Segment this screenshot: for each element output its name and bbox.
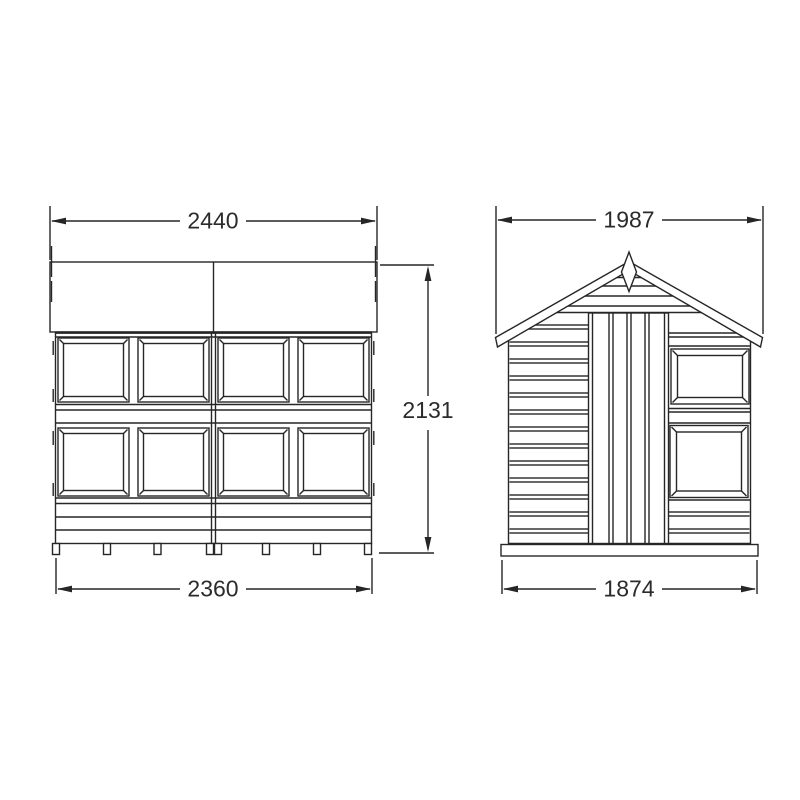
shed-technical-drawing: 2440 2131 2360 bbox=[0, 0, 800, 800]
front-wall bbox=[56, 332, 372, 544]
foot bbox=[207, 544, 214, 555]
front-roof-width-label: 2440 bbox=[187, 208, 238, 234]
side-base-width-dimension: 1874 bbox=[502, 560, 757, 602]
front-roof-width-dimension: 2440 bbox=[50, 206, 377, 260]
side-base-rail bbox=[501, 545, 758, 557]
front-height-dimension: 2131 bbox=[379, 265, 454, 553]
technical-drawing-canvas: 2440 2131 2360 bbox=[0, 0, 800, 800]
arrowhead bbox=[361, 218, 376, 225]
foot bbox=[215, 544, 222, 555]
foot bbox=[104, 544, 111, 555]
front-elevation-view: 2440 2131 2360 bbox=[50, 206, 454, 602]
side-elevation-view: 1987 1874 bbox=[495, 206, 765, 602]
arrowhead bbox=[51, 218, 66, 225]
arrowhead bbox=[503, 586, 518, 593]
front-roof-band bbox=[50, 246, 377, 332]
foot bbox=[314, 544, 321, 555]
side-left-cladding bbox=[510, 313, 589, 543]
arrowhead bbox=[741, 586, 756, 593]
front-feet bbox=[53, 544, 372, 555]
arrowhead bbox=[57, 586, 72, 593]
arrowhead bbox=[747, 217, 762, 224]
front-base-width-dimension: 2360 bbox=[56, 558, 372, 602]
front-base-width-label: 2360 bbox=[187, 576, 238, 602]
arrowhead bbox=[356, 586, 371, 593]
side-bottom-cladding bbox=[669, 502, 750, 543]
side-roof-width-label: 1987 bbox=[603, 207, 654, 233]
foot bbox=[53, 544, 60, 555]
foot bbox=[263, 544, 270, 555]
arrowhead bbox=[497, 217, 512, 224]
front-height-label: 2131 bbox=[402, 397, 453, 423]
side-base-width-label: 1874 bbox=[603, 576, 654, 602]
foot bbox=[365, 544, 372, 555]
foot bbox=[154, 544, 161, 555]
arrowhead bbox=[425, 266, 432, 281]
side-door bbox=[589, 313, 669, 544]
arrowhead bbox=[425, 537, 432, 552]
